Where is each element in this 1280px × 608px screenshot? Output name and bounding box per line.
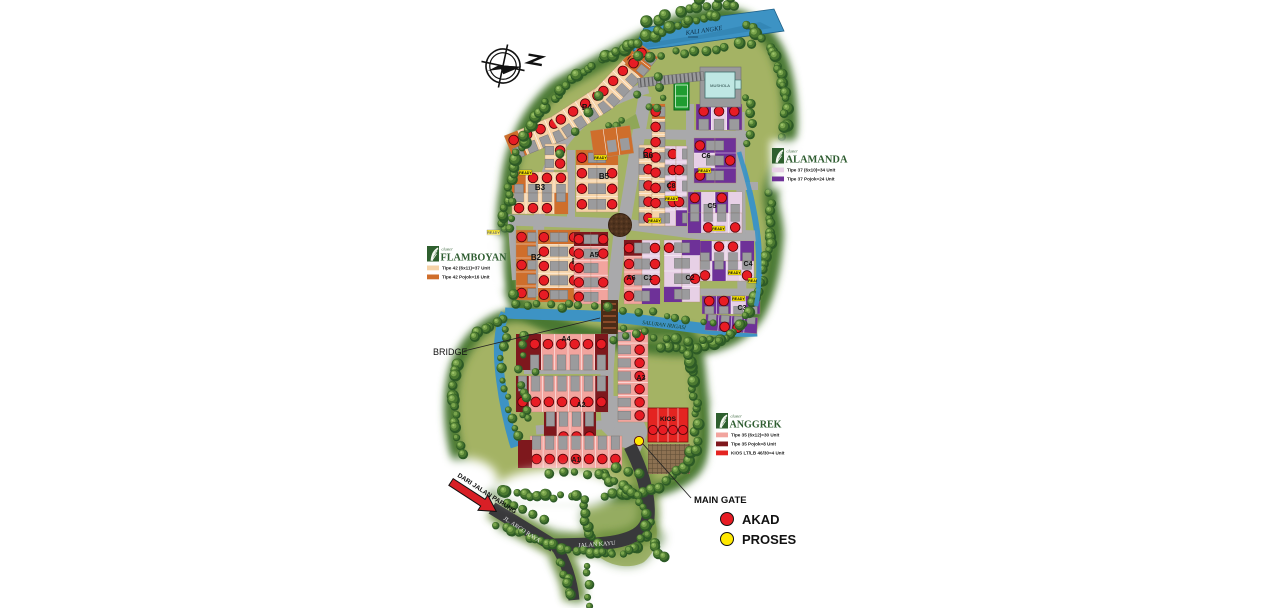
svg-text:B2: B2 — [531, 253, 542, 262]
svg-text:KIOS LT/LB 46/30=4 Unit: KIOS LT/LB 46/30=4 Unit — [731, 451, 785, 456]
svg-text:A6: A6 — [627, 275, 636, 282]
svg-text:Tipe 37 (6x10)=34 Unit: Tipe 37 (6x10)=34 Unit — [787, 168, 836, 173]
svg-text:Tipe 35 (6x12)=30 Unit: Tipe 35 (6x12)=30 Unit — [731, 433, 780, 438]
svg-text:KIOS: KIOS — [660, 416, 677, 423]
svg-text:Tipe 42 Pojok=16 Unit: Tipe 42 Pojok=16 Unit — [442, 275, 490, 280]
svg-text:READY: READY — [712, 227, 725, 231]
svg-text:C5: C5 — [708, 203, 717, 210]
svg-text:READY: READY — [698, 169, 711, 173]
svg-text:Tipe 42 (6x11)=37 Unit: Tipe 42 (6x11)=37 Unit — [442, 266, 491, 271]
svg-text:FLAMBOYAN: FLAMBOYAN — [441, 252, 507, 264]
svg-text:A4: A4 — [562, 336, 571, 343]
svg-text:C2: C2 — [686, 275, 695, 282]
svg-text:READY: READY — [519, 171, 532, 175]
svg-text:MAIN GATE: MAIN GATE — [694, 495, 747, 506]
svg-text:C1: C1 — [644, 275, 653, 282]
svg-text:MUSHOLA: MUSHOLA — [710, 83, 730, 88]
svg-text:ANGGREK: ANGGREK — [730, 419, 782, 431]
svg-text:READY: READY — [728, 271, 741, 275]
svg-text:Tipe 37 Pojok=24 Unit: Tipe 37 Pojok=24 Unit — [787, 177, 835, 182]
svg-text:C8: C8 — [667, 183, 676, 190]
svg-text:READY: READY — [665, 197, 678, 201]
svg-text:A1: A1 — [572, 457, 581, 464]
svg-text:B6: B6 — [643, 151, 654, 160]
svg-text:A2: A2 — [577, 402, 586, 409]
svg-text:READY: READY — [594, 156, 607, 160]
svg-text:B5: B5 — [599, 172, 610, 181]
svg-text:ALAMANDA: ALAMANDA — [786, 154, 848, 166]
svg-text:Tipe 35 Pojok=8 Unit: Tipe 35 Pojok=8 Unit — [731, 442, 776, 447]
svg-text:B3: B3 — [535, 183, 546, 192]
svg-text:READY: READY — [732, 297, 745, 301]
svg-text:A5: A5 — [590, 252, 599, 259]
svg-text:READY: READY — [648, 219, 661, 223]
svg-text:PROSES: PROSES — [742, 532, 797, 547]
svg-text:A3: A3 — [637, 375, 646, 382]
svg-text:BRIDGE: BRIDGE — [433, 347, 468, 357]
svg-text:C4: C4 — [744, 261, 753, 268]
svg-text:C6: C6 — [702, 153, 711, 160]
svg-text:AKAD: AKAD — [742, 512, 780, 527]
